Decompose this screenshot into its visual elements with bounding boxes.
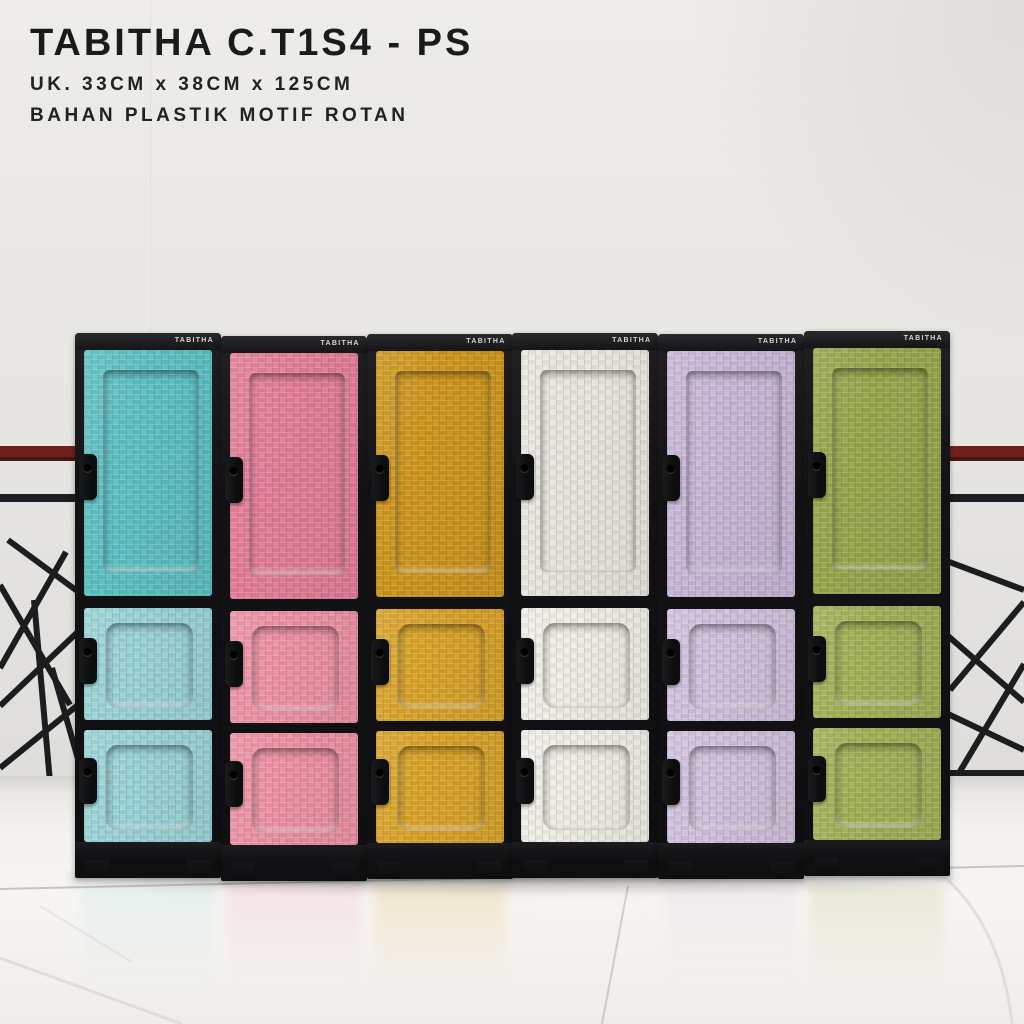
cabinet-bottom-door [376,731,504,843]
cabinet-base [512,842,658,860]
cabinet-middle-door [813,606,941,718]
cabinet-top-frame: TABITHA [658,334,804,351]
door-recessed-panel [689,624,776,709]
cabinet-foot-right [331,863,358,881]
door-handle [225,457,243,503]
door-recessed-panel [835,743,922,828]
cabinet-top-frame: TABITHA [804,331,950,348]
door-handle [808,636,826,682]
door-recessed-panel [106,623,193,708]
cabinet-middle-door [84,608,212,720]
door-recessed-panel [398,746,485,831]
door-recessed-panel [835,621,922,706]
brand-label: TABITHA [466,338,505,345]
cabinet-base [367,843,513,861]
cabinet-middle-door [521,608,649,720]
door-handle [808,756,826,802]
cabinet-top-frame: TABITHA [221,336,367,353]
product-title: TABITHA C.T1S4 - PS [30,22,473,66]
cabinet-bottom-door [230,733,358,845]
door-recessed-panel [252,748,339,833]
brand-label: TABITHA [904,335,943,342]
cabinet-foot-right [622,860,649,878]
cabinet-base [75,842,221,860]
cabinet-top-frame: TABITHA [75,333,221,350]
cabinet-tosca: TABITHA [75,333,221,878]
cabinet-bottom-door [521,730,649,842]
brand-label: TABITHA [175,337,214,344]
door-handle [79,638,97,684]
cabinet-bottom-door [84,730,212,842]
door-handle [371,639,389,685]
door-handle [662,639,680,685]
cabinet-base [221,845,367,863]
cabinet-top-door [813,348,941,594]
brand-label: TABITHA [758,338,797,345]
door-recessed-panel [398,624,485,709]
door-handle [516,758,534,804]
cabinet-top-door [230,353,358,599]
cabinet-foot-left [813,858,840,876]
cabinet-foot-left [84,860,111,878]
cabinet-foot-left [230,863,257,881]
cabinet-bottom-door [813,728,941,840]
cabinet-top-door [521,350,649,596]
door-recessed-panel [689,746,776,831]
door-recessed-panel [103,370,199,572]
cabinet-lilac: TABITHA [658,334,804,879]
product-material: BAHAN PLASTIK MOTIF ROTAN [30,103,473,129]
door-handle [225,761,243,807]
cabinet-foot-right [477,861,504,879]
cabinet-middle-door [667,609,795,721]
cabinet-broken-white: TABITHA [512,333,658,878]
door-recessed-panel [686,371,782,573]
door-handle [371,455,389,501]
cabinet-foot-right [914,858,941,876]
cabinet-mustard: TABITHA [367,334,513,879]
brand-label: TABITHA [320,340,359,347]
door-handle [662,759,680,805]
cabinet-top-door [667,351,795,597]
cabinet-foot-left [376,861,403,879]
cabinet-bottom-door [667,731,795,843]
cabinet-top-frame: TABITHA [512,333,658,350]
product-photo-scene: TABITHA C.T1S4 - PS UK. 33CM x 38CM x 12… [0,0,1024,1024]
door-recessed-panel [540,370,636,572]
door-recessed-panel [252,626,339,711]
door-handle [516,454,534,500]
door-handle [79,758,97,804]
cabinet-middle-door [230,611,358,723]
door-handle [516,638,534,684]
product-size: UK. 33CM x 38CM x 125CM [30,72,473,98]
cabinet-foot-left [521,860,548,878]
cabinet-base [804,840,950,858]
product-caption: TABITHA C.T1S4 - PS UK. 33CM x 38CM x 12… [30,22,473,129]
cabinet-middle-door [376,609,504,721]
cabinet-pink: TABITHA [221,336,367,881]
cabinet-olive: TABITHA [804,331,950,876]
door-handle [662,455,680,501]
brand-label: TABITHA [612,337,651,344]
cabinet-top-frame: TABITHA [367,334,513,351]
door-recessed-panel [249,373,345,575]
door-handle [371,759,389,805]
door-handle [808,452,826,498]
door-handle [225,641,243,687]
cabinet-foot-left [667,861,694,879]
door-handle [79,454,97,500]
cabinet-foot-right [185,860,212,878]
door-recessed-panel [832,368,928,570]
cabinet-base [658,843,804,861]
door-recessed-panel [395,371,491,573]
cabinet-top-door [376,351,504,597]
cabinet-foot-right [768,861,795,879]
door-recessed-panel [106,745,193,830]
door-recessed-panel [543,745,630,830]
door-recessed-panel [543,623,630,708]
cabinet-top-door [84,350,212,596]
cabinet-row: TABITHA TABITHA [0,0,1024,1024]
